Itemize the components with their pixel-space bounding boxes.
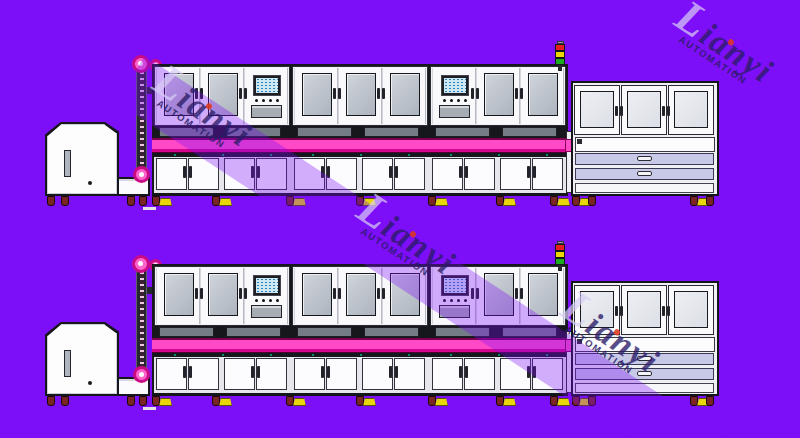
feeder-dot	[88, 181, 92, 185]
caster-wheel	[428, 396, 436, 406]
cabinet-hmi	[432, 68, 476, 124]
caster-wheel	[61, 396, 69, 406]
cabinet-door	[188, 358, 219, 390]
cabinet-window	[338, 268, 382, 324]
production-line-row-2	[0, 200, 800, 420]
sensor-dot	[498, 154, 500, 156]
elevator-chain	[140, 260, 144, 378]
hmi-button	[262, 299, 265, 302]
door-handle	[515, 88, 518, 99]
door-handle	[476, 288, 479, 299]
work-surface-slab	[297, 327, 352, 337]
hmi-monitor	[253, 75, 281, 96]
process-module-1	[154, 266, 290, 326]
hmi-button	[457, 99, 460, 102]
window-glass	[346, 273, 376, 316]
door-handle	[257, 166, 260, 178]
work-surface-slab	[297, 127, 352, 137]
conveyor-band-shade	[152, 349, 568, 353]
feeder-body	[47, 124, 117, 194]
sensor-dot	[270, 354, 272, 356]
work-surface-slab	[159, 327, 214, 337]
door-handle	[520, 288, 523, 299]
leveling-foot	[435, 398, 448, 406]
sensor-dot	[546, 154, 548, 156]
door-handle	[465, 166, 468, 178]
door-handle	[200, 88, 203, 99]
cabinet-door	[188, 158, 219, 190]
hmi-monitor	[253, 275, 281, 296]
sensor-dot	[312, 154, 314, 156]
door-handle	[476, 88, 479, 99]
hmi-tray	[439, 105, 470, 118]
caster-wheel	[496, 396, 504, 406]
door-handle	[662, 106, 665, 116]
tower-light-green	[555, 258, 565, 265]
hmi-screen	[444, 278, 466, 293]
feeder-machine	[45, 122, 119, 196]
work-surface-slab	[226, 327, 281, 337]
door-handle	[251, 166, 254, 178]
window-glass	[302, 273, 332, 316]
feeder-slot-window	[64, 350, 71, 377]
hmi-button	[276, 299, 279, 302]
elevator-sprocket	[132, 55, 150, 73]
feeder-body	[47, 324, 117, 394]
door-handle	[382, 288, 385, 299]
elevator-sprocket	[133, 166, 150, 183]
production-line-row-1	[0, 0, 800, 220]
door-handle	[257, 366, 260, 378]
tower-light-yellow	[555, 51, 565, 58]
door-handle	[244, 88, 247, 99]
door-handle	[667, 106, 670, 116]
sensor-dot	[408, 154, 410, 156]
process-module-1	[154, 66, 290, 126]
tower-light-red	[555, 44, 565, 51]
door-handle	[382, 88, 385, 99]
sensor-dot	[450, 154, 452, 156]
sprocket-hub	[139, 372, 144, 377]
caster-wheel	[47, 396, 55, 406]
door-handle	[239, 88, 242, 99]
window-glass	[346, 73, 376, 116]
channel-block	[577, 139, 582, 144]
right-machine-window	[627, 291, 661, 328]
hmi-button	[269, 299, 272, 302]
door-handle	[615, 106, 618, 116]
lower-cabinet-area	[154, 357, 566, 393]
cabinet-door	[326, 158, 357, 190]
door-handle	[327, 166, 330, 178]
right-machine-window	[627, 91, 661, 128]
hmi-button	[443, 99, 446, 102]
leveling-foot	[503, 398, 516, 406]
cad-drawing-canvas: Lianyi AUTOMATION Lianyi AUTOMATION Lian…	[0, 0, 800, 438]
caster-wheel	[212, 396, 220, 406]
door-handle	[459, 166, 462, 178]
sensor-dot	[222, 354, 224, 356]
hmi-button	[457, 299, 460, 302]
hmi-button	[450, 299, 453, 302]
door-handle	[533, 366, 536, 378]
elevator-sprocket	[132, 255, 150, 273]
caster-wheel	[152, 396, 160, 406]
door-handle	[183, 366, 186, 378]
window-glass	[484, 273, 514, 316]
cabinet-door	[256, 358, 287, 390]
drawer-handle	[637, 356, 652, 361]
door-handle	[520, 88, 523, 99]
work-surface-slab	[435, 127, 490, 137]
door-handle	[533, 166, 536, 178]
hmi-monitor	[441, 275, 469, 296]
door-handle	[377, 288, 380, 299]
door-handle	[620, 306, 623, 316]
feeder-dot	[88, 381, 92, 385]
cabinet-window	[382, 68, 426, 124]
door-handle	[195, 88, 198, 99]
work-surface-slab	[364, 127, 419, 137]
work-surface-slab	[435, 327, 490, 337]
right-machine-bottom-panel	[575, 183, 714, 193]
door-handle	[465, 366, 468, 378]
hmi-screen	[256, 78, 278, 93]
door-handle	[200, 288, 203, 299]
door-handle	[189, 366, 192, 378]
sprocket-hub	[138, 261, 143, 266]
elevator-sprocket	[133, 366, 150, 383]
door-handle	[527, 366, 530, 378]
door-handle	[195, 288, 198, 299]
cabinet-hmi	[244, 268, 288, 324]
work-surface-slab	[502, 327, 557, 337]
tower-light-red	[555, 244, 565, 251]
scale-dash	[143, 407, 156, 410]
leveling-foot	[363, 398, 376, 406]
hmi-tray	[439, 305, 470, 318]
door-handle	[667, 306, 670, 316]
cabinet-window	[338, 68, 382, 124]
hmi-button	[276, 99, 279, 102]
door-handle	[395, 366, 398, 378]
window-glass	[484, 73, 514, 116]
cabinet-window	[294, 268, 338, 324]
cabinet-window	[294, 68, 338, 124]
cabinet-door	[326, 358, 357, 390]
caster-wheel	[550, 396, 558, 406]
feeder-slot-window	[64, 150, 71, 177]
right-machine-window	[674, 91, 708, 128]
feeder-machine	[45, 322, 119, 396]
cabinet-door	[532, 158, 563, 190]
hmi-button	[464, 99, 467, 102]
sensor-dot	[360, 154, 362, 156]
cabinet-hmi	[244, 68, 288, 124]
cabinet-hmi	[432, 268, 476, 324]
sensor-dot	[270, 154, 272, 156]
door-handle	[459, 366, 462, 378]
door-handle	[327, 366, 330, 378]
cabinet-window	[382, 268, 426, 324]
hmi-monitor	[441, 75, 469, 96]
process-module-2	[292, 66, 428, 126]
door-handle	[389, 366, 392, 378]
conveyor-band	[152, 338, 568, 353]
door-handle	[395, 166, 398, 178]
work-surface-slab	[364, 327, 419, 337]
hmi-button	[269, 99, 272, 102]
door-handle	[333, 288, 336, 299]
work-surface-slab	[226, 127, 281, 137]
hmi-button	[262, 99, 265, 102]
caster-wheel	[127, 396, 135, 406]
sensor-dot	[360, 354, 362, 356]
window-glass	[208, 273, 238, 316]
right-machine-window	[674, 291, 708, 328]
window-glass	[390, 73, 420, 116]
door-handle	[251, 366, 254, 378]
sensor-dot	[408, 354, 410, 356]
door-handle	[527, 166, 530, 178]
door-handle	[471, 288, 474, 299]
sensor-dot	[312, 354, 314, 356]
door-handle	[189, 166, 192, 178]
sensor-dot	[450, 354, 452, 356]
process-module-2	[292, 266, 428, 326]
window-glass	[302, 73, 332, 116]
caster-wheel	[286, 396, 294, 406]
cabinet-door	[394, 358, 425, 390]
door-handle	[333, 88, 336, 99]
tower-light-green	[555, 58, 565, 65]
caster-wheel	[572, 396, 580, 406]
sensor-dot	[498, 354, 500, 356]
caster-wheel	[356, 396, 364, 406]
window-glass	[528, 273, 558, 316]
sensor-dot	[546, 354, 548, 356]
hmi-button	[255, 99, 258, 102]
sensor-dot	[174, 154, 176, 156]
window-glass	[390, 273, 420, 316]
passthrough-channel	[575, 137, 715, 152]
cabinet-window	[200, 268, 244, 324]
cabinet-window	[520, 68, 564, 124]
leveling-foot	[293, 398, 306, 406]
cabinet-window	[476, 68, 520, 124]
cabinet-door	[464, 158, 495, 190]
drawer-handle	[637, 371, 652, 376]
window-glass	[528, 73, 558, 116]
signal-tower-pole	[558, 265, 562, 271]
leveling-foot	[159, 398, 172, 406]
window-glass	[208, 73, 238, 116]
door-handle	[239, 288, 242, 299]
sprocket-hub	[139, 172, 144, 177]
tower-light-yellow	[555, 251, 565, 258]
door-handle	[471, 88, 474, 99]
leveling-foot	[557, 398, 570, 406]
door-handle	[377, 88, 380, 99]
drawer-handle	[637, 156, 652, 161]
door-handle	[389, 166, 392, 178]
door-handle	[662, 306, 665, 316]
hmi-tray	[251, 105, 282, 118]
leveling-foot	[219, 398, 232, 406]
conveyor-band	[152, 138, 568, 153]
elevator-chain	[140, 60, 144, 178]
cabinet-window	[476, 268, 520, 324]
passthrough-channel	[575, 337, 715, 352]
window-glass	[164, 73, 194, 116]
door-handle	[515, 288, 518, 299]
work-surface-slab	[159, 127, 214, 137]
sensor-dot	[222, 154, 224, 156]
cabinet-window	[520, 268, 564, 324]
process-module-3	[430, 66, 566, 126]
door-handle	[615, 306, 618, 316]
cabinet-window	[156, 268, 200, 324]
right-machine-window	[580, 91, 614, 128]
lower-cabinet-area	[154, 157, 566, 193]
door-handle	[338, 88, 341, 99]
hmi-tray	[251, 305, 282, 318]
signal-tower-pole	[558, 65, 562, 71]
cabinet-window	[200, 68, 244, 124]
window-glass	[164, 273, 194, 316]
door-handle	[620, 106, 623, 116]
hmi-button	[450, 99, 453, 102]
cabinet-door	[464, 358, 495, 390]
channel-block	[577, 339, 582, 344]
door-handle	[338, 288, 341, 299]
door-handle	[183, 166, 186, 178]
work-surface-slab	[502, 127, 557, 137]
sensor-dot	[174, 354, 176, 356]
conveyor-band-shade	[152, 149, 568, 153]
hmi-button	[443, 299, 446, 302]
hmi-button	[255, 299, 258, 302]
caster-wheel	[690, 396, 698, 406]
cabinet-door	[256, 158, 287, 190]
hmi-button	[464, 299, 467, 302]
right-machine-bottom-panel	[575, 383, 714, 393]
door-handle	[321, 366, 324, 378]
caster-wheel	[706, 396, 714, 406]
cabinet-window	[156, 68, 200, 124]
door-handle	[321, 166, 324, 178]
hmi-screen	[256, 278, 278, 293]
right-machine-window	[580, 291, 614, 328]
cabinet-door	[394, 158, 425, 190]
sprocket-hub	[138, 61, 143, 66]
caster-wheel	[139, 396, 147, 406]
process-module-3	[430, 266, 566, 326]
cabinet-door	[532, 358, 563, 390]
caster-wheel	[588, 396, 596, 406]
door-handle	[244, 288, 247, 299]
drawer-handle	[637, 171, 652, 176]
hmi-screen	[444, 78, 466, 93]
